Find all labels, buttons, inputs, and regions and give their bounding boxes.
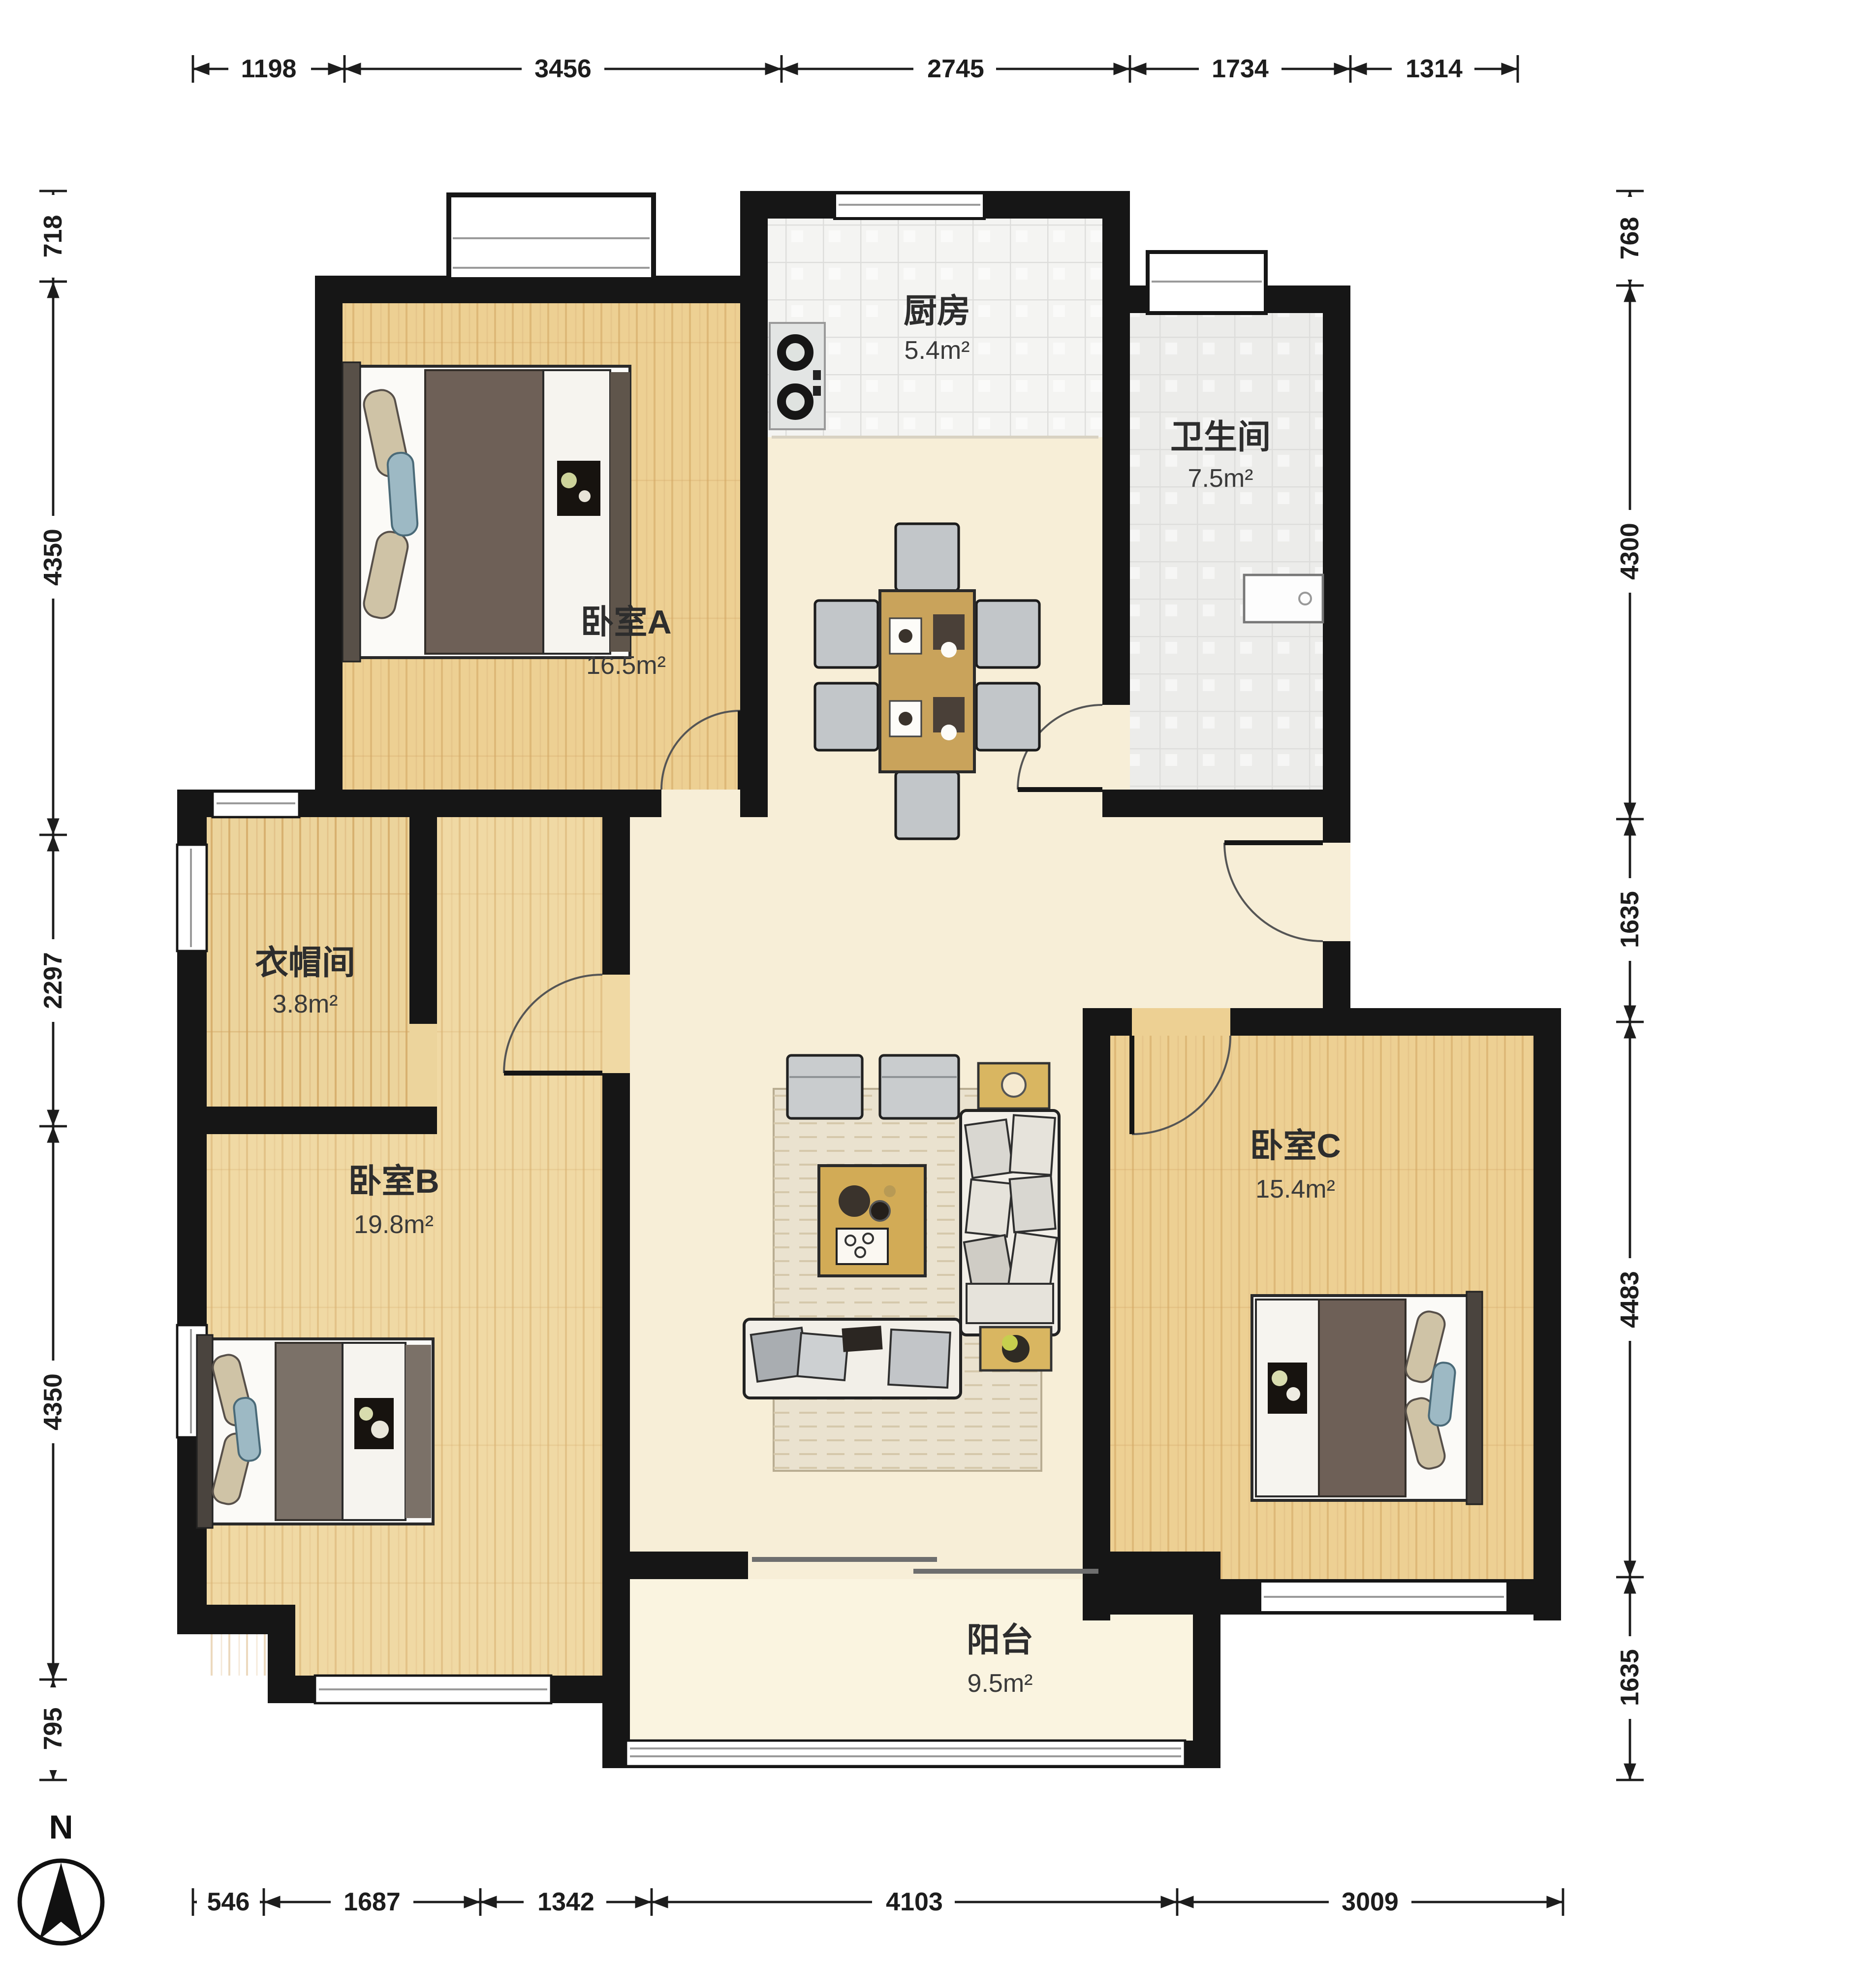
sofa-chaise bbox=[967, 1284, 1053, 1323]
bed-headboard bbox=[343, 362, 360, 662]
bedroomB-label: 卧室B bbox=[348, 1163, 439, 1200]
living-room-set bbox=[744, 1055, 1059, 1471]
coffee-table-tray bbox=[837, 1229, 888, 1264]
dim-label: 3009 bbox=[1342, 1888, 1399, 1916]
bed-duvet bbox=[276, 1343, 343, 1520]
dim-label: 4350 bbox=[39, 529, 67, 586]
bed-tray bbox=[1268, 1363, 1307, 1414]
dining-chair bbox=[896, 524, 959, 591]
dimension-left: 718 4350 2297 4350 795 bbox=[39, 191, 67, 1780]
balcony-area: 9.5m² bbox=[968, 1669, 1033, 1698]
dim-label: 1342 bbox=[537, 1888, 594, 1916]
dim-label: 546 bbox=[207, 1888, 250, 1916]
cloakroom-label: 衣帽间 bbox=[255, 944, 355, 982]
kitchen-window bbox=[835, 193, 984, 219]
dining-chair bbox=[815, 601, 878, 667]
dim-label: 2745 bbox=[927, 55, 984, 83]
bed-headboard bbox=[197, 1335, 213, 1528]
bedroomC-bottom-window bbox=[1260, 1581, 1508, 1613]
coffee-table-item bbox=[884, 1185, 896, 1197]
tray-item bbox=[1286, 1387, 1300, 1401]
bedroomA-door-threshold bbox=[661, 790, 740, 817]
coffee-table-item bbox=[839, 1185, 870, 1217]
bedroomB-area: 19.8m² bbox=[354, 1210, 434, 1239]
dimension-top: 1198 3456 2745 1734 1314 bbox=[193, 53, 1518, 85]
bedroomB-door-threshold bbox=[602, 975, 630, 1073]
dim-label: 3456 bbox=[534, 55, 592, 83]
stove-knob bbox=[813, 370, 821, 380]
dim-label: 4350 bbox=[39, 1373, 67, 1430]
kitchen-stove bbox=[770, 323, 825, 429]
tray-item bbox=[579, 490, 591, 502]
kitchen-label: 厨房 bbox=[904, 292, 970, 330]
bathroom-sink bbox=[1244, 575, 1323, 622]
plant-leaves bbox=[1002, 1335, 1018, 1351]
dimension-bottom: 546 1687 1342 4103 3009 bbox=[193, 1886, 1563, 1918]
bedroomB-bed bbox=[197, 1335, 433, 1528]
bed-pillow-blue bbox=[387, 452, 418, 536]
bedroomC-label: 卧室C bbox=[1250, 1127, 1341, 1165]
dim-label: 1734 bbox=[1212, 55, 1269, 83]
loveseat-cushion bbox=[797, 1333, 848, 1380]
tray-item bbox=[1272, 1370, 1287, 1386]
dim-label: 795 bbox=[39, 1708, 67, 1750]
dim-label: 718 bbox=[39, 215, 67, 258]
dining-chair bbox=[815, 683, 878, 750]
armchair bbox=[880, 1055, 959, 1118]
floorplan-svg: 1198 3456 2745 1734 1314 718 4350 2297 4… bbox=[0, 0, 1876, 1967]
bathroom-floor-tiles bbox=[1130, 313, 1323, 790]
entry-door-threshold bbox=[1323, 843, 1350, 941]
cloakroom-opening-threshold bbox=[409, 1024, 437, 1107]
dim-label: 2297 bbox=[39, 952, 67, 1009]
sofa-cushion bbox=[1010, 1175, 1056, 1232]
balcony-door-threshold bbox=[748, 1552, 1098, 1579]
dining-chair bbox=[976, 683, 1039, 750]
table-lamp bbox=[1002, 1073, 1026, 1097]
bathroom-area: 7.5m² bbox=[1188, 464, 1253, 493]
bathroom-window bbox=[1148, 252, 1266, 313]
kitchen-area: 5.4m² bbox=[905, 336, 970, 365]
cloakroom-top-window bbox=[213, 792, 299, 817]
armchair bbox=[787, 1055, 862, 1118]
bedroomB-bottom-window bbox=[315, 1676, 551, 1703]
balcony-railing-window bbox=[626, 1741, 1185, 1766]
loveseat-cushion bbox=[888, 1330, 950, 1388]
coffee-table-item bbox=[870, 1201, 890, 1221]
hall-floor-left bbox=[630, 817, 768, 1552]
dim-label: 4103 bbox=[886, 1888, 943, 1916]
sofa-cushion bbox=[966, 1179, 1012, 1237]
cloakroom-area: 3.8m² bbox=[273, 990, 338, 1018]
tray-item bbox=[561, 473, 577, 488]
bed-headboard bbox=[1467, 1292, 1482, 1504]
tray-item bbox=[371, 1421, 389, 1438]
bedroomA-bay-window bbox=[449, 195, 654, 280]
dim-label: 1635 bbox=[1616, 891, 1644, 948]
plate bbox=[941, 642, 957, 658]
bedroomC-area: 15.4m² bbox=[1255, 1175, 1335, 1204]
bed-duvet bbox=[1319, 1300, 1406, 1496]
bedroomA-label: 卧室A bbox=[580, 603, 671, 641]
plate bbox=[941, 725, 957, 740]
stove-burner bbox=[782, 388, 809, 415]
dim-label: 1198 bbox=[241, 55, 297, 83]
dim-label: 1314 bbox=[1406, 55, 1463, 83]
bedroomA-area: 16.5m² bbox=[586, 651, 666, 680]
dim-label: 4300 bbox=[1616, 523, 1644, 580]
dim-label: 768 bbox=[1616, 217, 1644, 260]
dining-chair bbox=[976, 601, 1039, 667]
north-label: N bbox=[49, 1808, 73, 1846]
balcony-label: 阳台 bbox=[967, 1621, 1033, 1659]
plate bbox=[899, 629, 912, 643]
sofa-cushion bbox=[1010, 1115, 1055, 1175]
bed-duvet bbox=[425, 370, 543, 654]
bed-tray bbox=[557, 461, 600, 516]
dining-chair bbox=[896, 772, 959, 839]
stove-burner bbox=[782, 339, 809, 366]
bedroomC-bed bbox=[1252, 1292, 1482, 1504]
sofa-cushion bbox=[965, 1119, 1013, 1178]
bedroomC-door-threshold bbox=[1132, 1008, 1230, 1036]
hall-floor-entry bbox=[1102, 817, 1323, 1008]
dimension-right: 768 4300 1635 4483 1635 bbox=[1616, 191, 1644, 1780]
dim-label: 1687 bbox=[344, 1888, 401, 1916]
dim-label: 1635 bbox=[1616, 1649, 1644, 1706]
tray-item bbox=[359, 1407, 373, 1421]
plate bbox=[899, 712, 912, 726]
bathroom-door-threshold bbox=[1102, 705, 1130, 790]
bed-foot-strip bbox=[406, 1345, 431, 1518]
floorplan-canvas: 1198 3456 2745 1734 1314 718 4350 2297 4… bbox=[0, 0, 1876, 1967]
loveseat-item bbox=[842, 1326, 882, 1352]
compass: N bbox=[20, 1808, 102, 1943]
stove-knob bbox=[813, 386, 821, 396]
cloakroom-left-window bbox=[177, 845, 207, 951]
dim-label: 4483 bbox=[1616, 1271, 1644, 1328]
bathroom-label: 卫生间 bbox=[1170, 418, 1271, 456]
